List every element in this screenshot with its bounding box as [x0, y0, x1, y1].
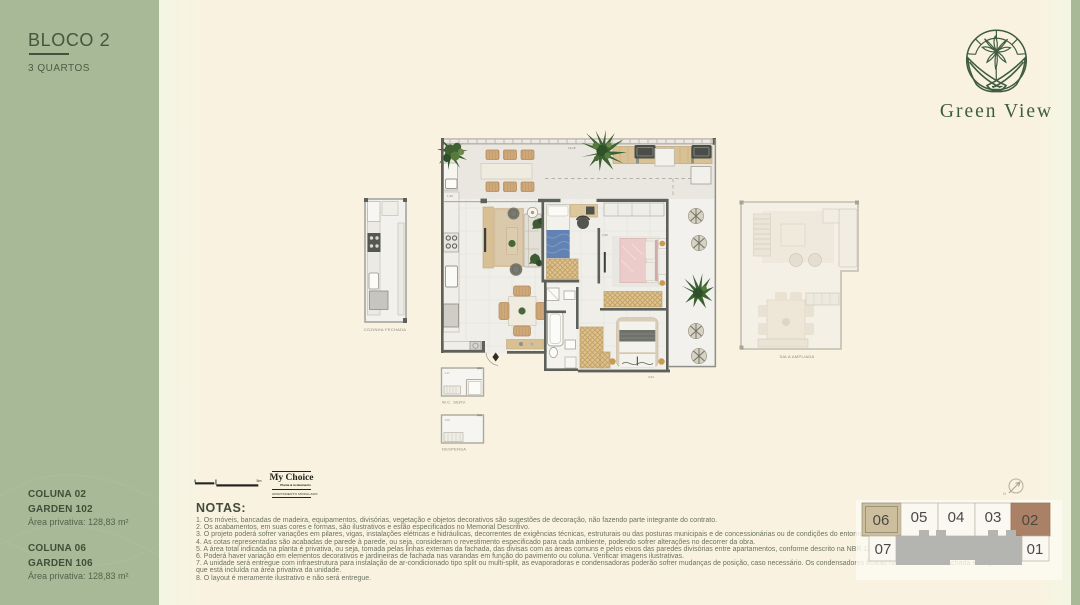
svg-text:13,28: 13,28: [568, 146, 576, 150]
svg-text:07: 07: [875, 541, 892, 558]
svg-text:W.C. SERV.: W.C. SERV.: [442, 400, 466, 405]
svg-text:3,17: 3,17: [547, 265, 553, 269]
svg-text:SALA AMPLIADA: SALA AMPLIADA: [779, 354, 814, 359]
svg-text:3,30: 3,30: [602, 233, 608, 237]
svg-text:DESPENSA: DESPENSA: [442, 447, 466, 452]
svg-text:3,64: 3,64: [648, 375, 654, 379]
svg-text:05: 05: [911, 509, 928, 526]
svg-text:1,08: 1,08: [445, 418, 451, 422]
svg-text:02: 02: [1022, 512, 1039, 529]
svg-text:06: 06: [873, 512, 890, 529]
svg-text:01: 01: [1027, 541, 1044, 558]
svg-text:1,17: 1,17: [445, 371, 451, 375]
svg-text:COZINHA FECHADA: COZINHA FECHADA: [364, 327, 407, 332]
svg-text:1,40: 1,40: [447, 194, 453, 198]
svg-text:N: N: [1003, 491, 1006, 496]
svg-text:04: 04: [948, 509, 965, 526]
svg-text:03: 03: [985, 509, 1002, 526]
